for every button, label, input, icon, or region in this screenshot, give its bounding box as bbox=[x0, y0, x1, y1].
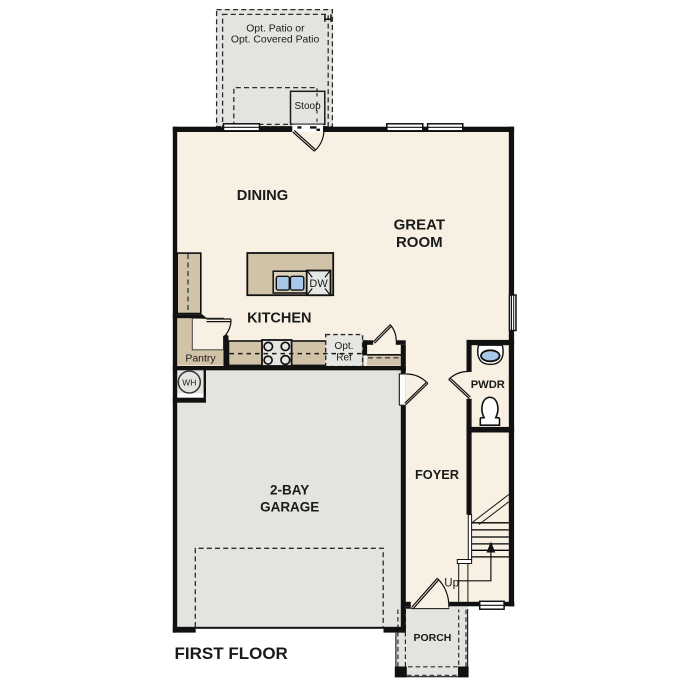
svg-text:DW: DW bbox=[309, 278, 328, 290]
svg-text:Opt. Patio or: Opt. Patio or bbox=[246, 23, 305, 34]
svg-text:PWDR: PWDR bbox=[471, 379, 505, 391]
svg-text:Up: Up bbox=[444, 578, 459, 590]
svg-text:DINING: DINING bbox=[237, 188, 288, 204]
svg-text:Opt.: Opt. bbox=[335, 341, 354, 352]
svg-text:FOYER: FOYER bbox=[415, 467, 459, 482]
svg-text:Opt. Covered Patio: Opt. Covered Patio bbox=[231, 35, 320, 46]
svg-text:PORCH: PORCH bbox=[413, 632, 451, 644]
svg-text:KITCHEN: KITCHEN bbox=[247, 310, 311, 326]
svg-text:Stoop: Stoop bbox=[295, 101, 322, 112]
svg-text:2-BAY: 2-BAY bbox=[270, 483, 309, 498]
svg-text:WH: WH bbox=[182, 378, 196, 388]
svg-text:FIRST FLOOR: FIRST FLOOR bbox=[175, 644, 288, 663]
svg-text:ROOM: ROOM bbox=[396, 234, 443, 251]
svg-text:GREAT: GREAT bbox=[394, 217, 445, 234]
svg-text:GARAGE: GARAGE bbox=[260, 499, 319, 514]
svg-text:Pantry: Pantry bbox=[185, 353, 216, 365]
